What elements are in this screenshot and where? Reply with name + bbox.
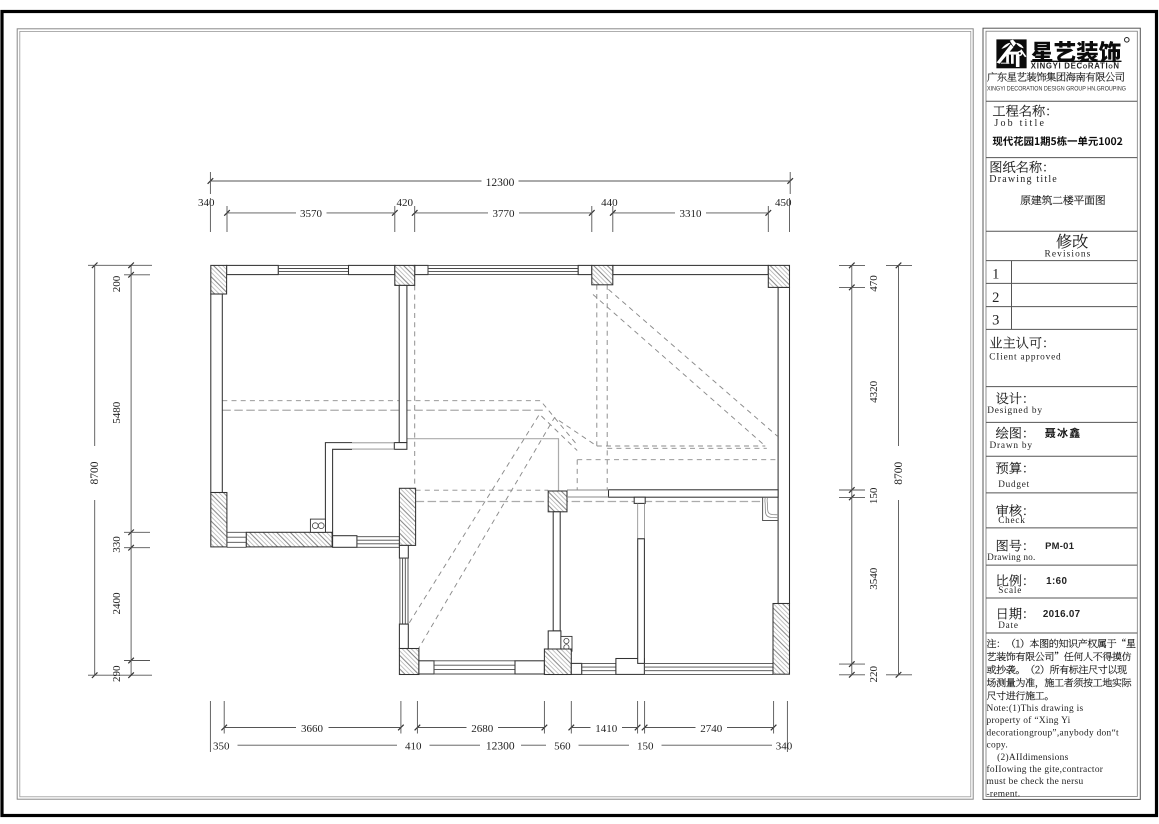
svg-text:Scale: Scale [998, 585, 1022, 595]
svg-text:3570: 3570 [300, 208, 323, 220]
svg-text:440: 440 [601, 197, 618, 209]
svg-text:340: 340 [776, 741, 793, 753]
svg-text:3310: 3310 [680, 208, 703, 220]
svg-text:560: 560 [554, 741, 571, 753]
svg-text:foIIowing the gite,contractor: foIIowing the gite,contractor [987, 764, 1104, 775]
svg-text:Job title: Job title [994, 118, 1046, 129]
svg-text:XINGYI DECORATION DESIGN GROUP: XINGYI DECORATION DESIGN GROUP HN.GROUPI… [987, 85, 1126, 92]
svg-text:3770: 3770 [493, 208, 516, 220]
svg-text:420: 420 [397, 197, 414, 209]
svg-text:2016.07: 2016.07 [1043, 609, 1081, 620]
svg-text:Check: Check [998, 515, 1025, 525]
svg-text:Dudget: Dudget [998, 479, 1030, 489]
svg-text:410: 410 [405, 741, 422, 753]
svg-text:2680: 2680 [471, 723, 494, 735]
svg-text:Designed by: Designed by [987, 406, 1043, 416]
svg-text:property of “Xing Yi: property of “Xing Yi [987, 715, 1071, 726]
svg-text:220: 220 [868, 665, 880, 682]
svg-text:8700: 8700 [89, 461, 101, 484]
svg-text:3660: 3660 [301, 723, 324, 735]
svg-text:12300: 12300 [486, 741, 515, 753]
svg-text:8700: 8700 [893, 462, 905, 485]
svg-text:Drawing title: Drawing title [989, 174, 1058, 185]
svg-text:12300: 12300 [486, 177, 515, 189]
svg-text:(2)AIIdimensions: (2)AIIdimensions [987, 752, 1069, 763]
svg-text:Revisions: Revisions [1045, 249, 1092, 259]
svg-text:3540: 3540 [868, 567, 880, 590]
svg-text:200: 200 [111, 275, 123, 292]
svg-text:4320: 4320 [868, 380, 880, 403]
svg-text:CIient approved: CIient approved [989, 352, 1061, 362]
svg-text:decorationgroup”,anybody don“t: decorationgroup”,anybody don“t [987, 728, 1119, 738]
svg-text:Drawing no.: Drawing no. [987, 552, 1035, 562]
svg-text:340: 340 [198, 197, 215, 209]
svg-text:-rement.: -rement. [987, 789, 1021, 799]
svg-text:XINGYI DECORATION: XINGYI DECORATION [1031, 61, 1120, 70]
svg-text:1410: 1410 [595, 723, 618, 735]
svg-text:Date: Date [998, 620, 1019, 630]
svg-text:PM-01: PM-01 [1045, 540, 1074, 551]
svg-text:150: 150 [868, 487, 880, 504]
svg-text:5480: 5480 [111, 401, 123, 424]
svg-text:2740: 2740 [700, 723, 723, 735]
svg-text:1:60: 1:60 [1046, 576, 1067, 587]
svg-text:Drawn by: Drawn by [990, 441, 1033, 451]
svg-text:330: 330 [111, 536, 123, 553]
svg-text:3: 3 [992, 312, 999, 328]
svg-text:2400: 2400 [111, 592, 123, 615]
svg-text:150: 150 [637, 741, 654, 753]
svg-text:1: 1 [992, 266, 999, 282]
svg-text:2: 2 [992, 290, 999, 306]
svg-text:Note:(1)This drawing is: Note:(1)This drawing is [987, 703, 1084, 714]
svg-text:350: 350 [213, 741, 230, 753]
svg-text:copy.: copy. [987, 741, 1008, 751]
svg-text:470: 470 [868, 275, 880, 292]
svg-text:290: 290 [111, 665, 123, 682]
svg-text:must be check the nersu: must be check the nersu [987, 777, 1084, 787]
